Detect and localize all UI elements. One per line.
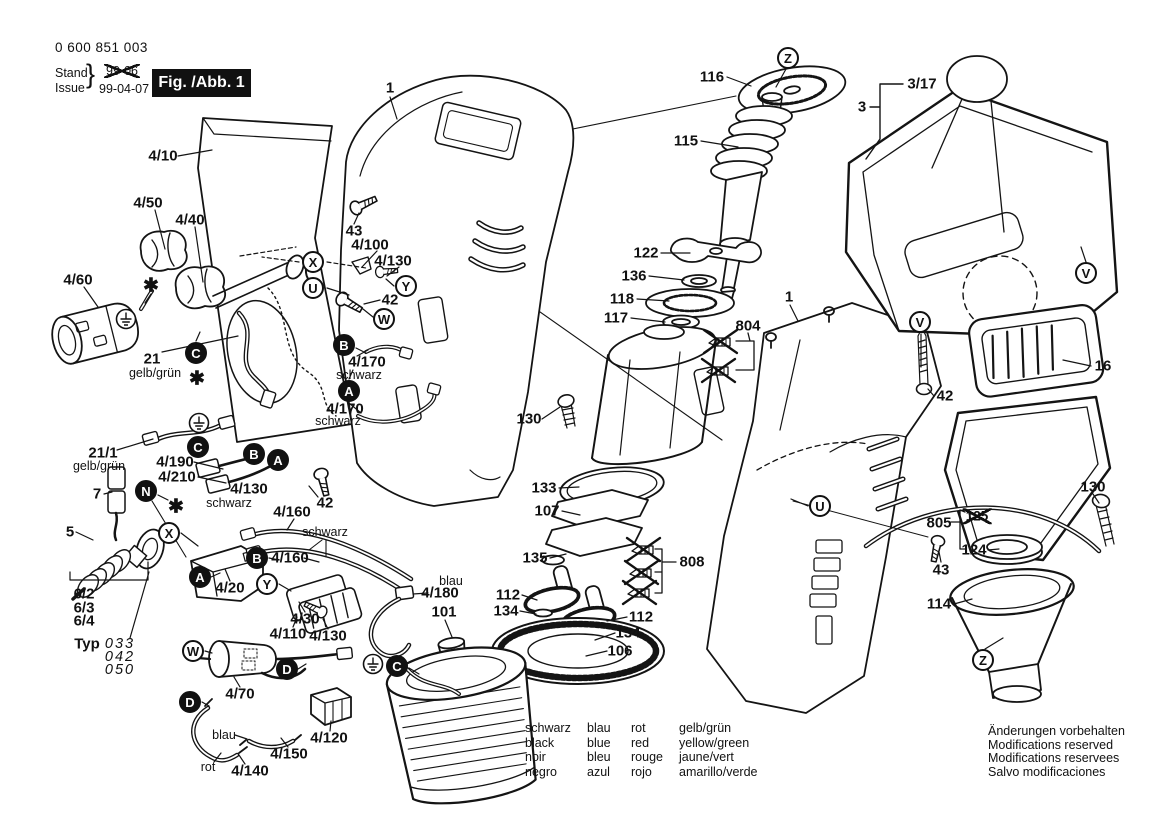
parts-diagram-page: 0 600 851 003 Stand Issue } 99-06 99-04-… <box>0 0 1168 826</box>
part-label-1: 1 <box>785 290 793 305</box>
callout-a: A <box>338 380 360 402</box>
legend-cell: negro <box>525 765 587 780</box>
note-line: Modifications reservees <box>988 752 1125 766</box>
part-label-4-50: 4/50 <box>133 196 162 211</box>
issue-label: Issue <box>55 81 85 95</box>
part-label-5: 5 <box>66 525 74 540</box>
part-label-101: 101 <box>431 605 456 620</box>
legend-cell: rouge <box>631 750 679 765</box>
color-legend: schwarz blau rot gelb/grün black blue re… <box>525 721 789 779</box>
note-line: Änderungen vorbehalten <box>988 725 1125 739</box>
callout-x: X <box>158 522 180 544</box>
callout-w: W <box>182 640 204 662</box>
part-label-112: 112 <box>496 588 520 603</box>
part-label-4-160: 4/160 <box>273 505 311 520</box>
part-label-4-130: 4/130 <box>374 254 412 269</box>
part-label-42: 42 <box>382 293 399 308</box>
bearing-housing <box>592 320 725 464</box>
part-label-106: 106 <box>607 644 632 659</box>
part-label-124: 124 <box>961 543 986 558</box>
part-label-gelb-grün: gelb/grün <box>73 460 125 473</box>
legend-cell: yellow/green <box>679 736 789 751</box>
part-label-4-70: 4/70 <box>225 687 254 702</box>
part-label-schwarz: schwarz <box>336 369 382 382</box>
connector-4-120 <box>311 688 351 725</box>
cam-plates-107 <box>546 490 648 556</box>
legend-cell: blau <box>587 721 631 736</box>
callout-a: A <box>267 449 289 471</box>
stand-label: Stand <box>55 66 88 80</box>
callout-z: Z <box>777 47 799 69</box>
callout-d: D <box>276 658 298 680</box>
part-label-115: 115 <box>674 134 698 149</box>
part-label-122: 122 <box>633 246 658 261</box>
part-label-4-130: 4/130 <box>309 629 347 644</box>
disc-118 <box>646 289 734 317</box>
legend-cell: bleu <box>587 750 631 765</box>
part-label-133: 133 <box>531 481 556 496</box>
spring-and-shaft-115 <box>711 93 792 303</box>
legend-cell: jaune/vert <box>679 750 789 765</box>
part-label-schwarz: schwarz <box>302 526 348 539</box>
callout-y: Y <box>256 573 278 595</box>
part-label-134: 134 <box>493 604 518 619</box>
part-label-050: 050 <box>105 663 135 678</box>
part-label-130: 130 <box>1080 480 1105 495</box>
part-label-117: 117 <box>604 311 628 326</box>
asterisk-mark: ✱ <box>189 370 205 389</box>
part-label-42: 42 <box>317 496 334 511</box>
legend-cell: schwarz <box>525 721 587 736</box>
part-label-125: 125 <box>963 508 992 524</box>
hopper-cover <box>846 56 1117 337</box>
bolt-130-right <box>1092 493 1114 546</box>
note-line: Salvo modificaciones <box>988 766 1125 780</box>
part-label-4-150: 4/150 <box>270 747 308 762</box>
part-label-4-30: 4/30 <box>290 612 319 627</box>
grille-insert <box>967 303 1105 398</box>
part-label-805: 805 <box>926 516 951 531</box>
callout-v: V <box>909 311 931 333</box>
callout-v: V <box>1075 262 1097 284</box>
part-label-3-17: 3/17 <box>907 77 936 92</box>
part-label-42: 42 <box>937 389 954 404</box>
legend-cell: rot <box>631 721 679 736</box>
part-label-4-40: 4/40 <box>175 213 204 228</box>
funnel <box>948 564 1076 702</box>
part-label-130: 130 <box>516 412 541 427</box>
knob-4-50 <box>141 231 187 271</box>
part-label-4-210: 4/210 <box>158 470 196 485</box>
callout-d: D <box>179 691 201 713</box>
callout-b: B <box>246 547 268 569</box>
blade-holder-122 <box>671 239 761 263</box>
part-label-43: 43 <box>933 563 950 578</box>
terminal-blocks-7 <box>108 467 125 540</box>
motor <box>381 627 545 811</box>
callout-c: C <box>187 436 209 458</box>
part-label-4-110: 4/110 <box>270 627 307 642</box>
part-label-4-20: 4/20 <box>215 581 244 596</box>
part-label-4-120: 4/120 <box>310 731 348 746</box>
part-label-4-180: 4/180 <box>421 586 459 601</box>
legend-cell: rojo <box>631 765 679 780</box>
part-label-135: 135 <box>522 551 547 566</box>
callout-u: U <box>302 277 324 299</box>
issue-date: 99-04-07 <box>99 82 149 96</box>
ground-icon <box>362 653 384 675</box>
callout-b: B <box>333 334 355 356</box>
part-label-4-10: 4/10 <box>148 149 177 164</box>
ground-icon <box>115 308 137 330</box>
modification-notes: Änderungen vorbehalten Modifications res… <box>988 725 1125 779</box>
callout-w: W <box>373 308 395 330</box>
part-label-blau: blau <box>212 729 236 742</box>
callout-n: N <box>135 480 157 502</box>
washer-136 <box>682 275 716 287</box>
part-label-16: 16 <box>1095 359 1112 374</box>
callout-c: C <box>185 342 207 364</box>
asterisk-mark: ✱ <box>143 277 159 296</box>
bolt-130-left <box>557 393 576 428</box>
legend-cell: azul <box>587 765 631 780</box>
legend-row: noir bleu rouge jaune/vert <box>525 750 789 765</box>
stand-issue-brace: } <box>86 59 95 90</box>
part-label-schwarz: schwarz <box>206 497 252 510</box>
part-label-6-4: 6/4 <box>74 614 95 629</box>
callout-z: Z <box>972 649 994 671</box>
ground-icon <box>188 412 210 434</box>
part-label-4-190: 4/190 <box>156 455 194 470</box>
legend-cell: noir <box>525 750 587 765</box>
part-label-3: 3 <box>858 100 866 115</box>
legend-cell: amarillo/verde <box>679 765 789 780</box>
legend-cell: black <box>525 736 587 751</box>
callout-b: B <box>243 443 265 465</box>
callout-c: C <box>386 655 408 677</box>
note-line: Modifications reserved <box>988 739 1125 753</box>
part-label-136: 136 <box>621 269 646 284</box>
part-label-21: 21 <box>144 352 161 367</box>
left-housing-half <box>339 76 573 506</box>
part-label-7: 7 <box>93 487 101 502</box>
legend-row: schwarz blau rot gelb/grün <box>525 721 789 736</box>
asterisk-mark: ✱ <box>168 498 184 517</box>
part-label-rot: rot <box>201 761 216 774</box>
part-label-107: 107 <box>534 504 559 519</box>
part-label-804: 804 <box>735 319 760 334</box>
callout-a: A <box>189 566 211 588</box>
part-label-118: 118 <box>610 292 634 307</box>
exploded-diagram <box>0 0 1168 826</box>
part-label-134: 134 <box>615 626 640 641</box>
callout-y: Y <box>395 275 417 297</box>
part-label-112: 112 <box>629 610 653 625</box>
part-label-1: 1 <box>386 81 394 96</box>
legend-cell: blue <box>587 736 631 751</box>
callout-u: U <box>809 495 831 517</box>
part-label-116: 116 <box>700 70 724 85</box>
legend-row: negro azul rojo amarillo/verde <box>525 765 789 780</box>
part-label-typ: Typ <box>74 637 100 652</box>
bracket-804 <box>736 333 754 370</box>
part-label-808: 808 <box>679 555 704 570</box>
part-label-gelb-grün: gelb/grün <box>129 367 181 380</box>
part-label-4-100: 4/100 <box>351 238 389 253</box>
part-label-114: 114 <box>927 597 951 612</box>
document-part-number: 0 600 851 003 <box>55 40 148 55</box>
legend-row: black blue red yellow/green <box>525 736 789 751</box>
legend-cell: red <box>631 736 679 751</box>
part-label-4-130: 4/130 <box>230 482 268 497</box>
superseded-date: 99-06 <box>104 64 140 78</box>
part-label-schwarz: schwarz <box>315 415 361 428</box>
wire-4-180-blau <box>371 586 414 656</box>
capacitor-4-70 <box>198 641 353 678</box>
legend-cell: gelb/grün <box>679 721 789 736</box>
bracket-808 <box>655 549 676 593</box>
part-label-4-60: 4/60 <box>63 273 92 288</box>
part-label-4-160: 4/160 <box>271 551 309 566</box>
part-label-4-140: 4/140 <box>231 764 269 779</box>
callout-x: X <box>302 251 324 273</box>
figure-label: Fig. /Abb. 1 <box>152 69 251 97</box>
